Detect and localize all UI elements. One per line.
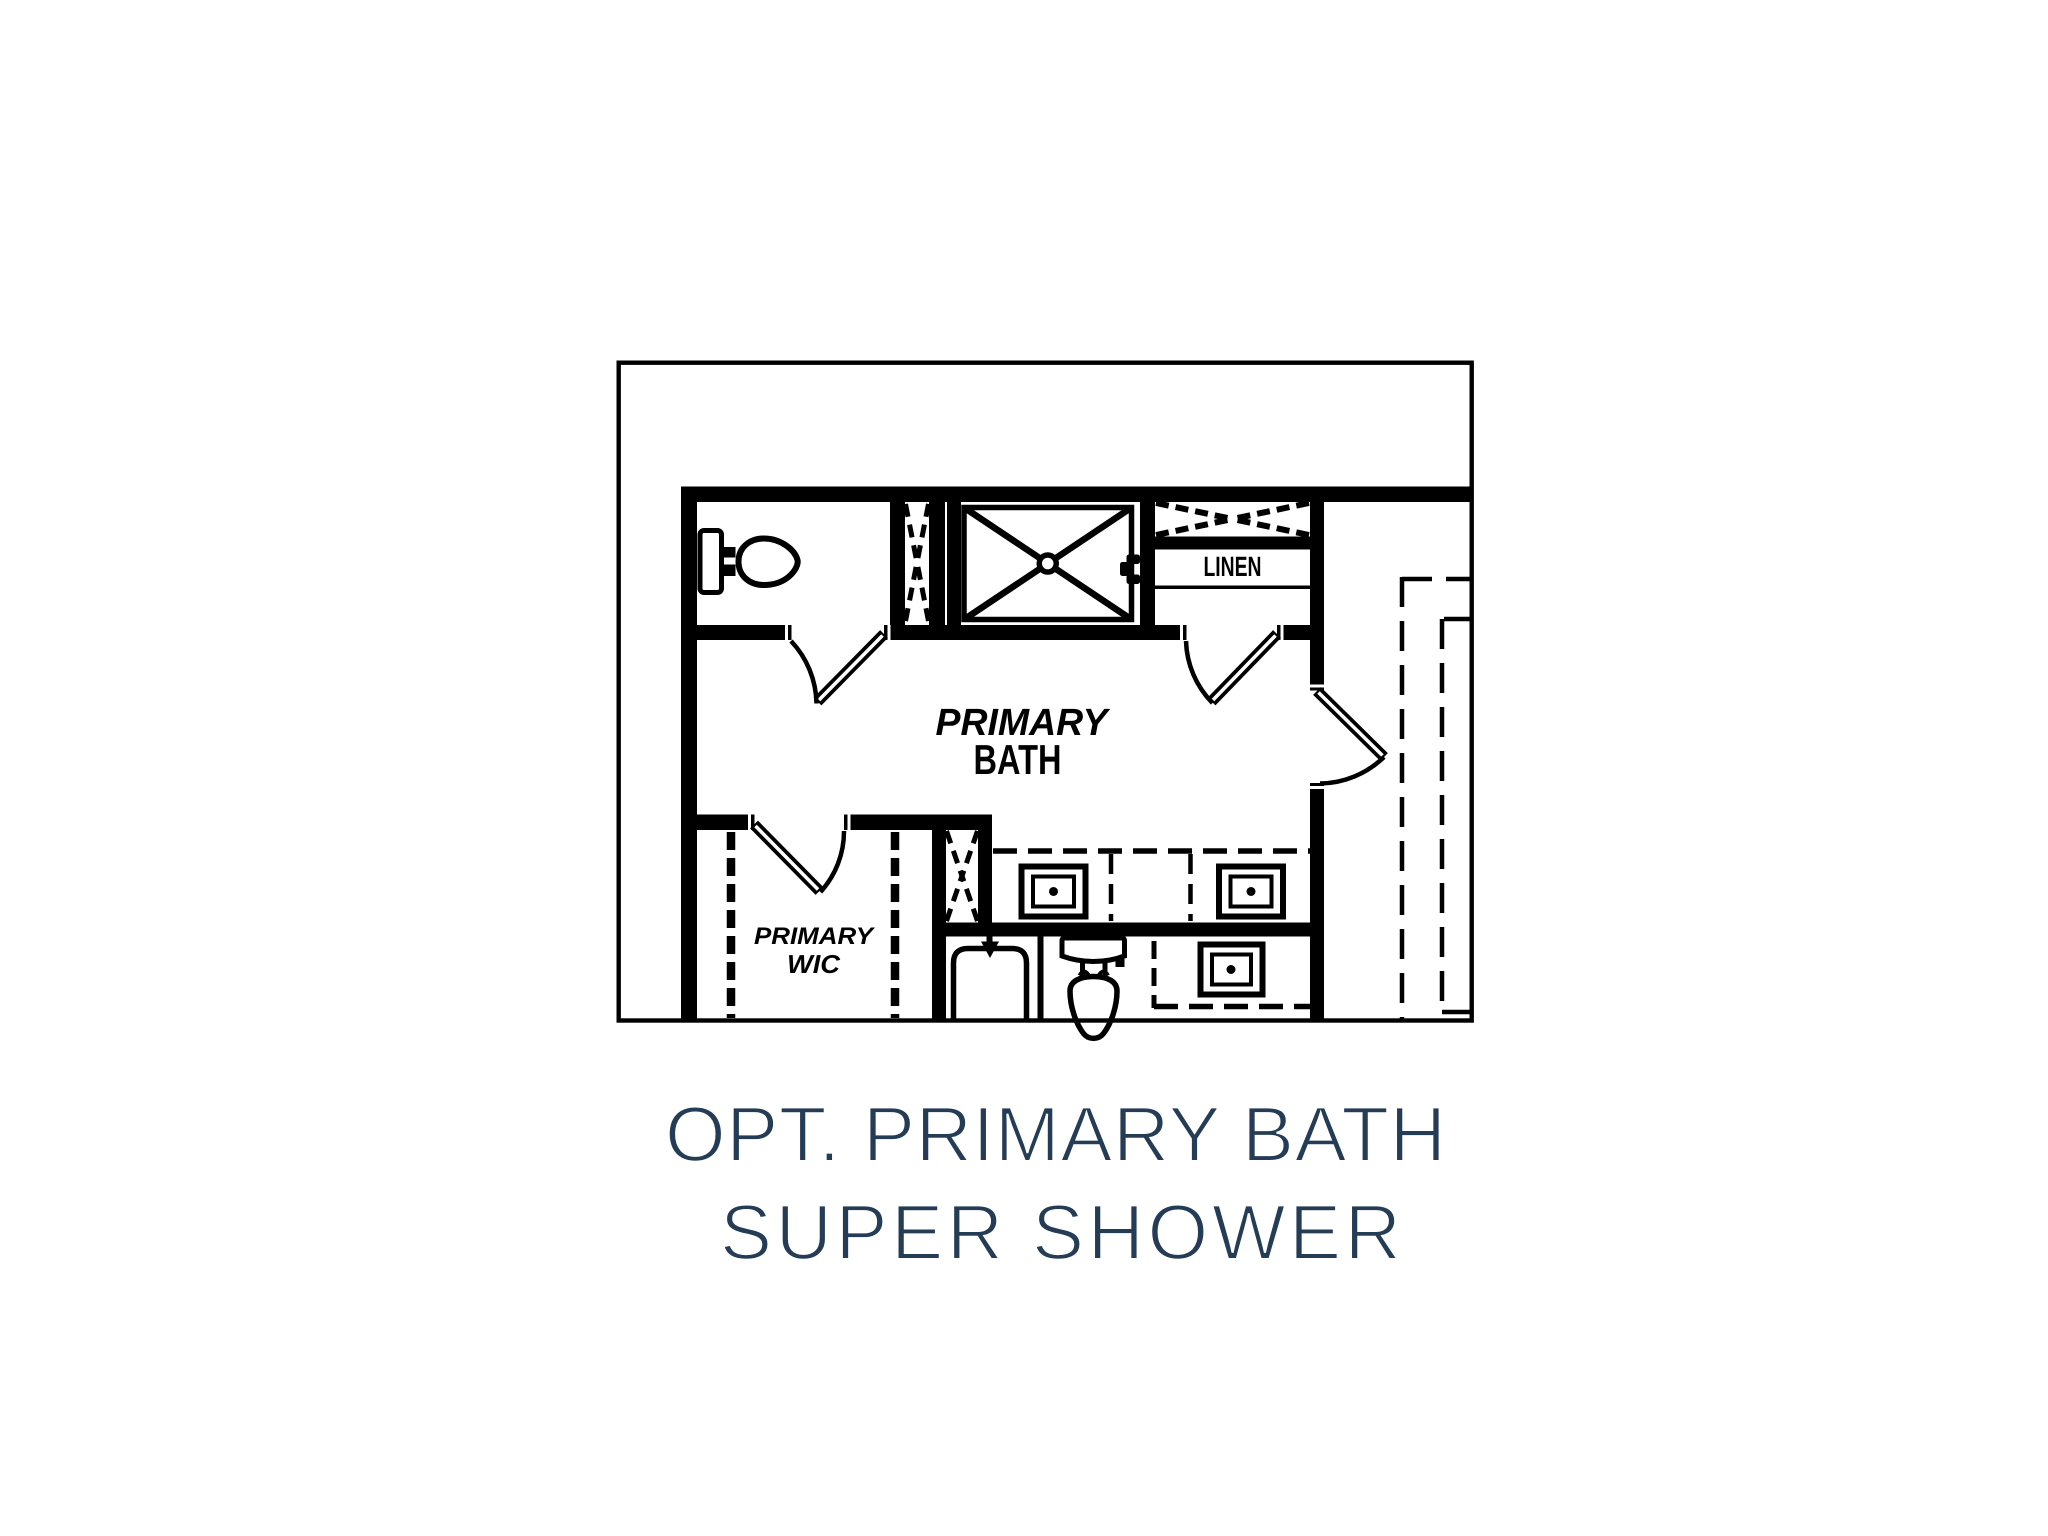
svg-text:OPT. PRIMARY BATH: OPT. PRIMARY BATH: [665, 1090, 1446, 1178]
svg-text:LINEN: LINEN: [1204, 551, 1262, 582]
svg-text:BATH: BATH: [974, 736, 1062, 783]
svg-text:WIC: WIC: [787, 949, 841, 979]
svg-text:PRIMARY: PRIMARY: [754, 923, 875, 950]
svg-text:SUPER SHOWER: SUPER SHOWER: [720, 1188, 1401, 1276]
